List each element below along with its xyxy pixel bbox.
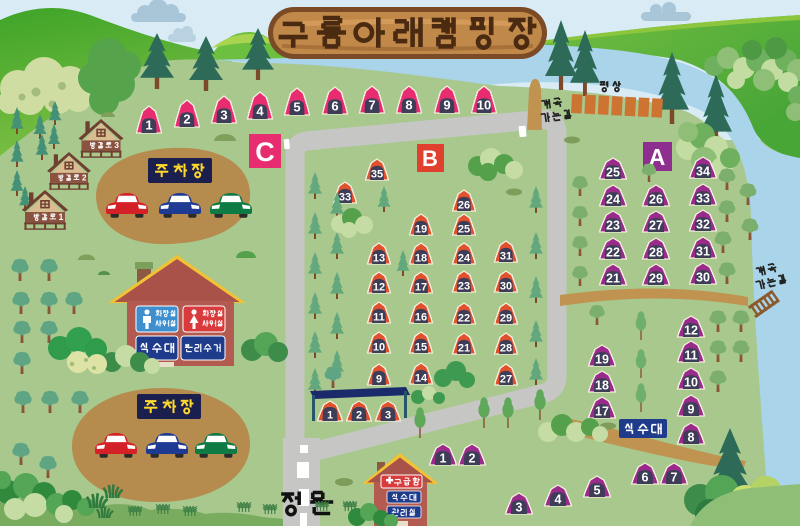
svg-text:9: 9 xyxy=(376,373,382,385)
svg-text:3: 3 xyxy=(114,140,119,150)
svg-text:10: 10 xyxy=(684,375,698,389)
svg-text:13: 13 xyxy=(373,252,385,264)
svg-text:6: 6 xyxy=(642,470,649,484)
svg-text:28: 28 xyxy=(500,342,512,354)
svg-text:21: 21 xyxy=(458,342,470,354)
svg-text:33: 33 xyxy=(696,191,710,205)
svg-text:30: 30 xyxy=(500,280,512,292)
svg-text:3: 3 xyxy=(220,108,227,123)
svg-text:24: 24 xyxy=(606,192,620,206)
svg-text:18: 18 xyxy=(595,378,609,392)
svg-text:27: 27 xyxy=(500,373,512,385)
svg-text:34: 34 xyxy=(696,164,710,178)
svg-text:2: 2 xyxy=(469,451,476,465)
svg-text:2: 2 xyxy=(356,409,362,421)
svg-text:10: 10 xyxy=(373,341,385,353)
svg-text:25: 25 xyxy=(606,165,620,179)
svg-text:15: 15 xyxy=(415,341,427,353)
svg-text:9: 9 xyxy=(688,402,695,416)
svg-text:17: 17 xyxy=(415,281,427,293)
svg-text:1: 1 xyxy=(440,451,447,465)
svg-text:7: 7 xyxy=(671,470,678,484)
svg-text:B: B xyxy=(422,146,438,171)
svg-text:35: 35 xyxy=(371,168,383,180)
svg-text:2: 2 xyxy=(82,173,87,183)
svg-text:11: 11 xyxy=(373,311,385,323)
svg-text:4: 4 xyxy=(256,104,264,119)
svg-text:6: 6 xyxy=(331,99,338,114)
svg-text:27: 27 xyxy=(649,218,663,232)
svg-text:32: 32 xyxy=(696,217,710,231)
svg-text:19: 19 xyxy=(595,352,609,366)
svg-text:22: 22 xyxy=(458,312,470,324)
svg-text:19: 19 xyxy=(415,223,427,235)
svg-text:29: 29 xyxy=(649,271,663,285)
svg-text:18: 18 xyxy=(415,252,427,264)
svg-text:23: 23 xyxy=(458,280,470,292)
svg-text:17: 17 xyxy=(595,404,609,418)
svg-text:12: 12 xyxy=(684,323,698,337)
svg-text:1: 1 xyxy=(327,409,333,421)
svg-text:3: 3 xyxy=(385,409,391,421)
svg-text:12: 12 xyxy=(373,281,385,293)
svg-text:25: 25 xyxy=(458,223,470,235)
svg-text:7: 7 xyxy=(368,98,375,113)
svg-text:8: 8 xyxy=(688,430,695,444)
svg-text:5: 5 xyxy=(594,483,601,497)
svg-text:26: 26 xyxy=(458,199,470,211)
svg-text:14: 14 xyxy=(415,372,428,384)
svg-text:21: 21 xyxy=(606,271,620,285)
svg-text:1: 1 xyxy=(59,212,64,222)
svg-text:10: 10 xyxy=(477,98,491,113)
svg-text:3: 3 xyxy=(516,500,523,514)
svg-text:26: 26 xyxy=(649,192,663,206)
svg-text:33: 33 xyxy=(339,191,351,203)
svg-text:31: 31 xyxy=(696,244,710,258)
svg-text:5: 5 xyxy=(293,100,300,115)
svg-text:2: 2 xyxy=(183,112,190,127)
svg-text:28: 28 xyxy=(649,245,663,259)
svg-text:1: 1 xyxy=(145,118,152,133)
svg-text:4: 4 xyxy=(555,492,562,506)
svg-text:C: C xyxy=(255,137,275,167)
svg-text:9: 9 xyxy=(443,98,450,113)
svg-text:29: 29 xyxy=(500,312,512,324)
svg-text:16: 16 xyxy=(415,311,427,323)
svg-text:23: 23 xyxy=(606,218,620,232)
svg-text:24: 24 xyxy=(458,252,471,264)
svg-text:8: 8 xyxy=(405,98,412,113)
svg-text:31: 31 xyxy=(500,250,512,262)
svg-text:22: 22 xyxy=(606,245,620,259)
svg-text:11: 11 xyxy=(684,348,697,362)
svg-text:30: 30 xyxy=(696,270,710,284)
